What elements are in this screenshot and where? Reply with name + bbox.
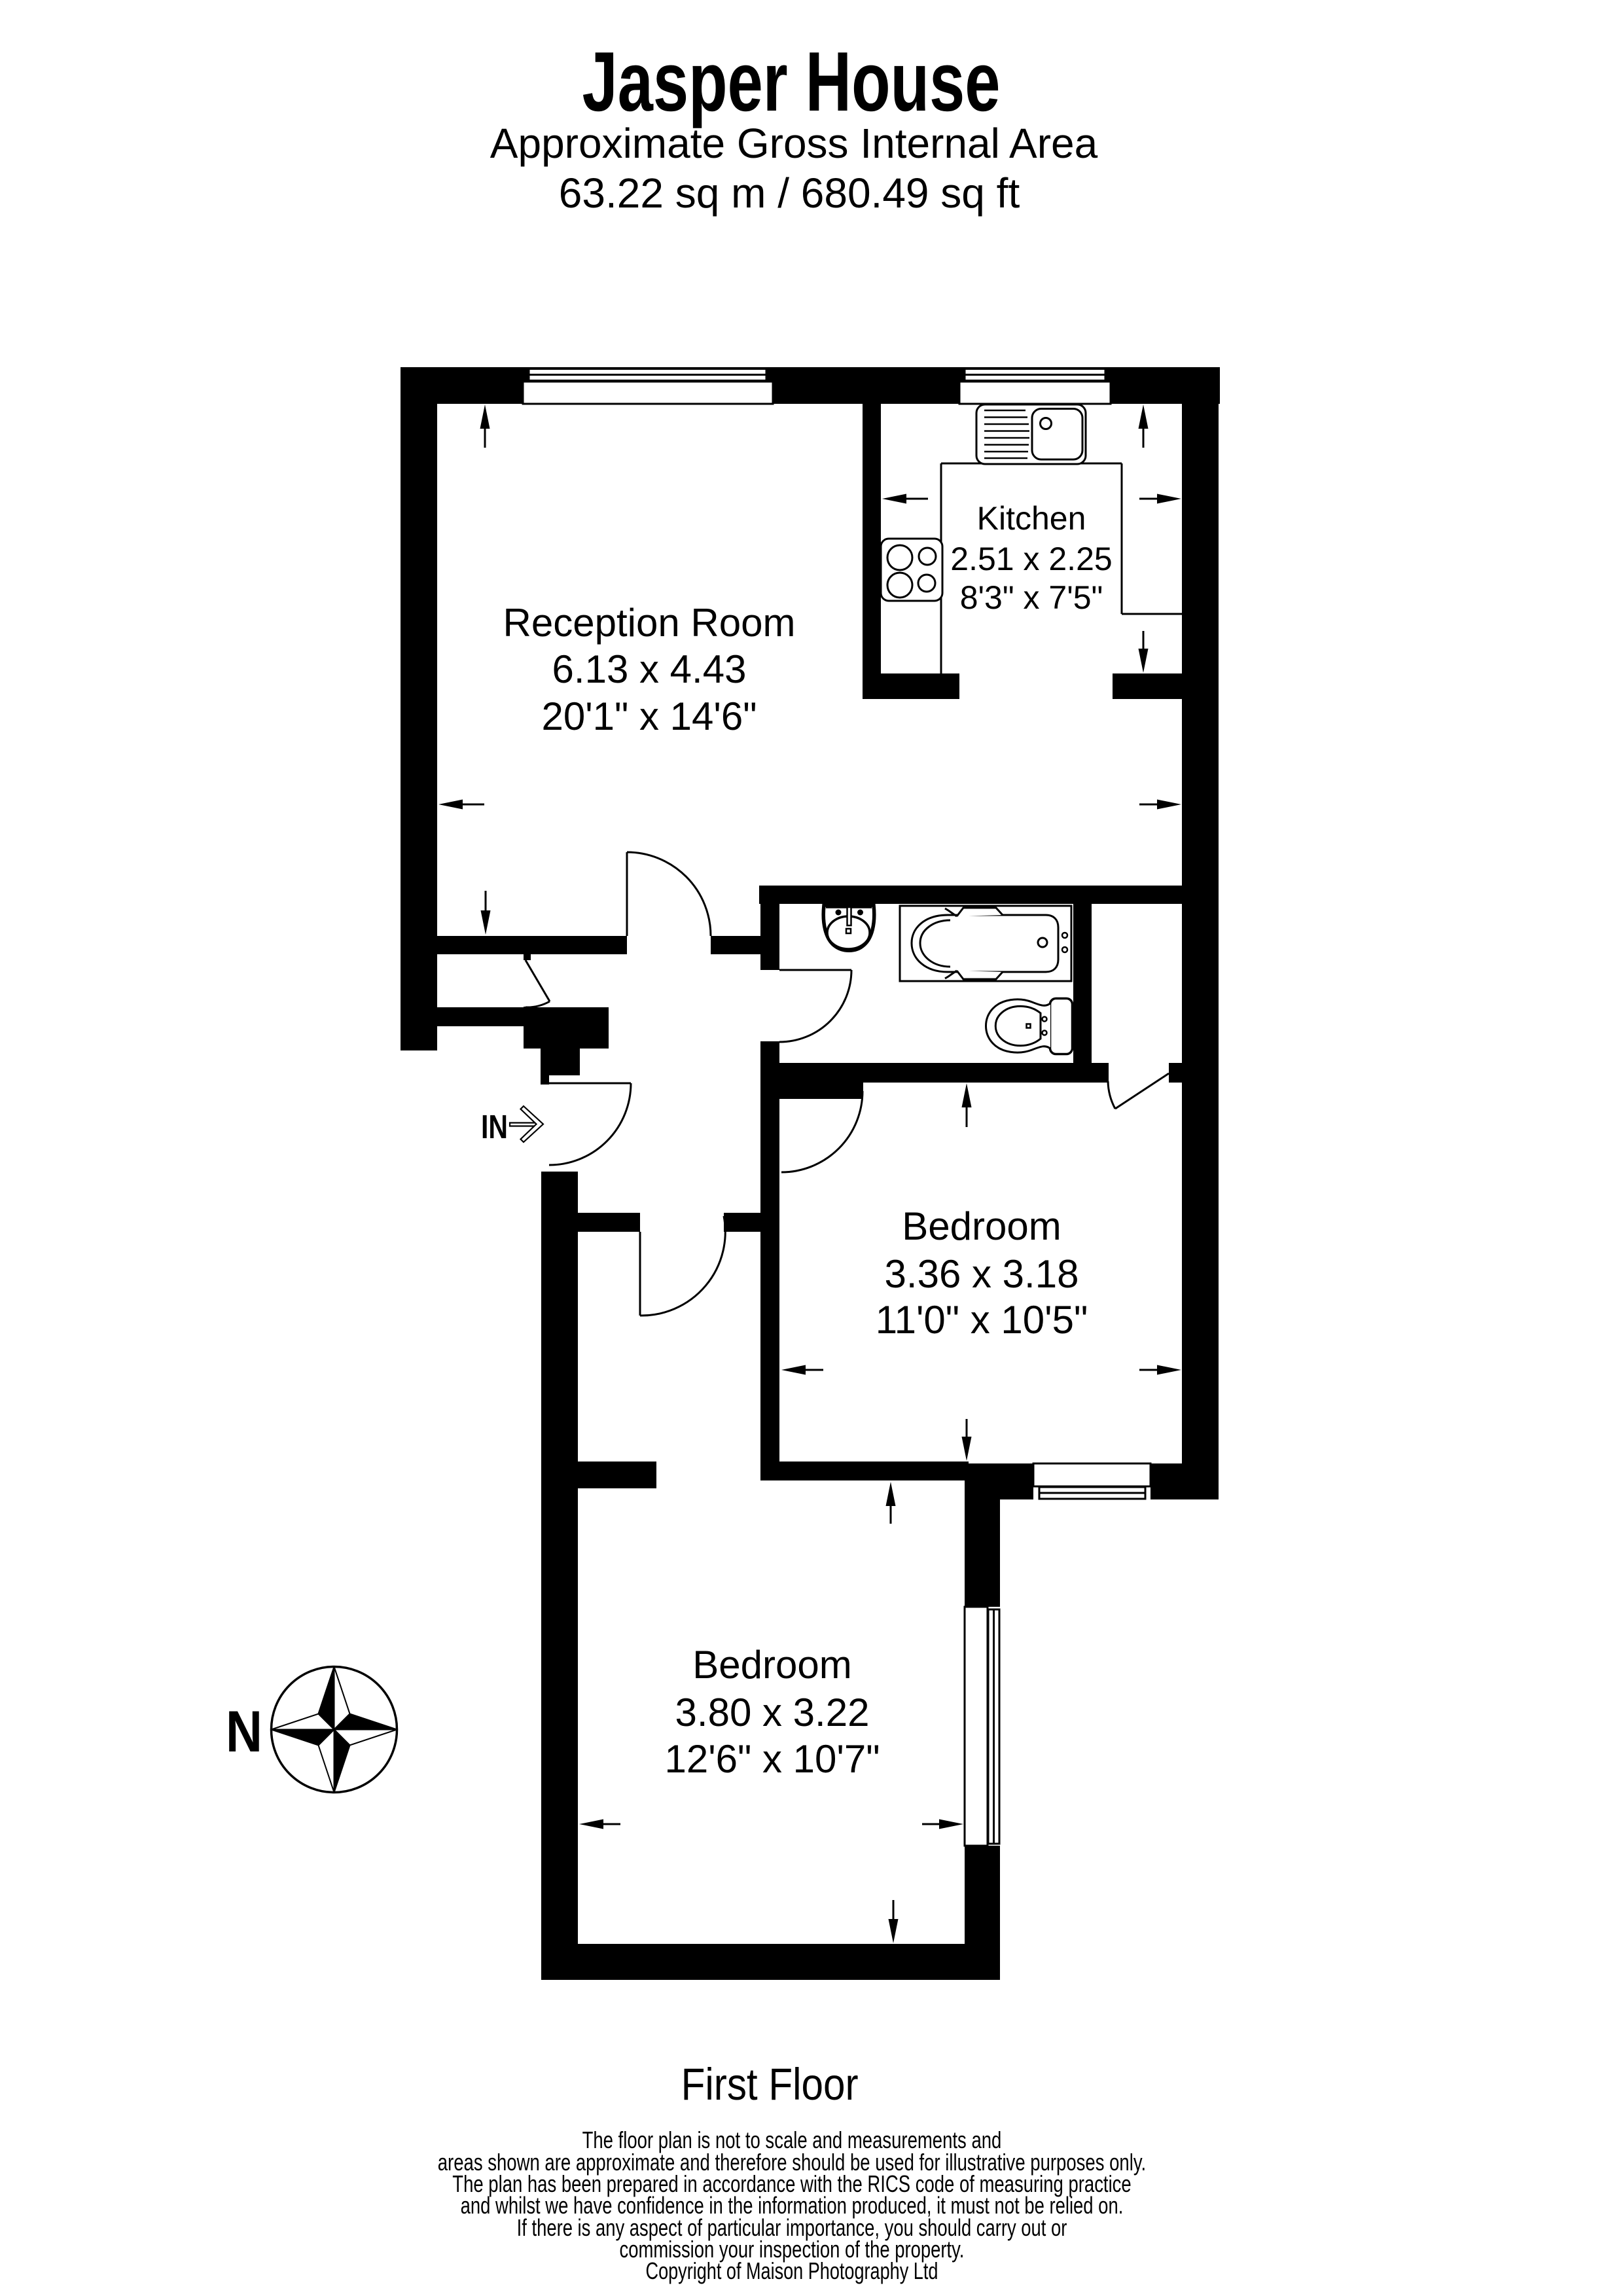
svg-text:11'0" x 10'5": 11'0" x 10'5" <box>876 1298 1088 1342</box>
svg-text:Approximate Gross Internal Are: Approximate Gross Internal Area <box>490 120 1098 167</box>
svg-text:3.80 x 3.22: 3.80 x 3.22 <box>675 1691 870 1734</box>
svg-text:Bedroom: Bedroom <box>902 1204 1061 1248</box>
svg-text:8'3" x 7'5": 8'3" x 7'5" <box>960 579 1103 616</box>
svg-text:3.36 x 3.18: 3.36 x 3.18 <box>885 1252 1079 1296</box>
svg-text:Reception Room: Reception Room <box>503 601 796 645</box>
svg-text:63.22 sq m / 680.49 sq ft: 63.22 sq m / 680.49 sq ft <box>559 170 1020 217</box>
svg-text:First Floor: First Floor <box>681 2058 859 2109</box>
svg-text:6.13 x 4.43: 6.13 x 4.43 <box>552 647 747 691</box>
svg-text:2.51 x 2.25: 2.51 x 2.25 <box>950 541 1112 577</box>
svg-text:Kitchen: Kitchen <box>977 500 1086 537</box>
svg-text:Bedroom: Bedroom <box>692 1643 851 1687</box>
svg-text:Jasper House: Jasper House <box>582 35 1001 129</box>
svg-text:Copyright of Maison Photograph: Copyright of Maison Photography Ltd <box>646 2257 938 2284</box>
svg-text:20'1" x 14'6": 20'1" x 14'6" <box>541 694 757 738</box>
svg-text:N: N <box>226 1698 262 1764</box>
svg-text:IN: IN <box>481 1108 508 1145</box>
svg-text:12'6" x 10'7": 12'6" x 10'7" <box>664 1737 880 1781</box>
